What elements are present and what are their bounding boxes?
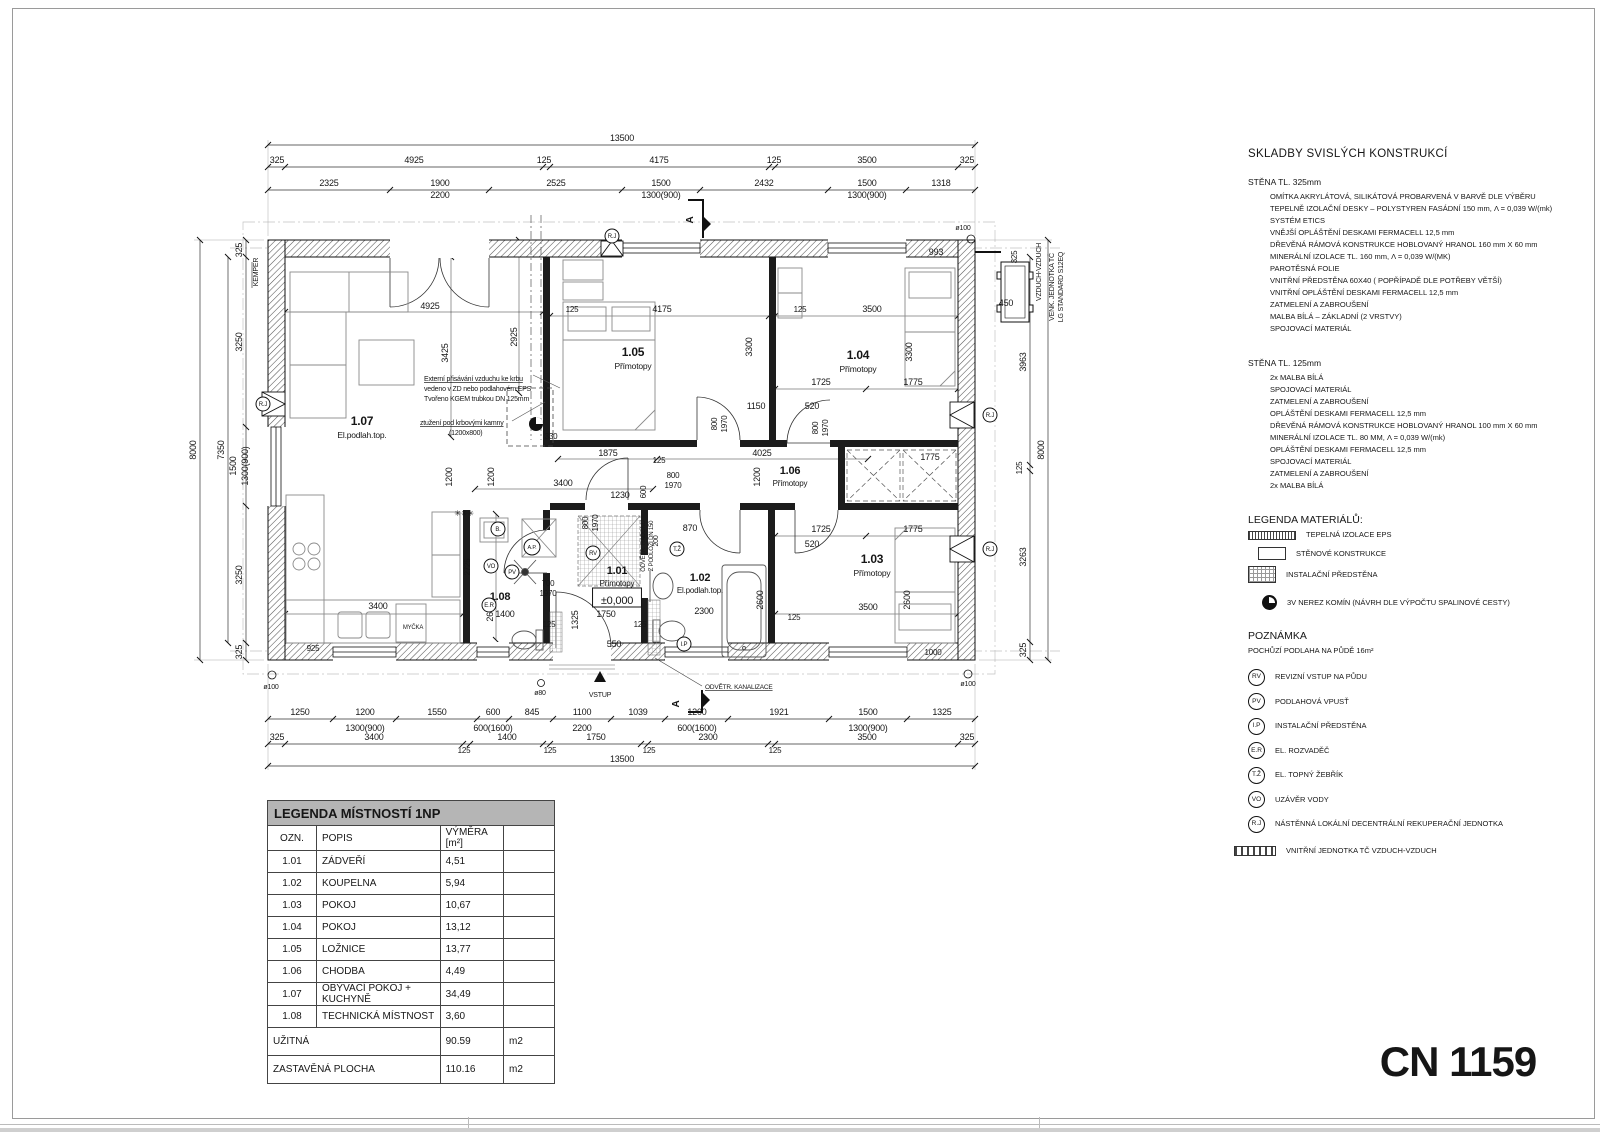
svg-text:330: 330	[545, 432, 558, 441]
next-sheet-band	[0, 1128, 1600, 1132]
svg-text:125: 125	[1015, 461, 1024, 474]
total-value: 110.16	[440, 1056, 503, 1084]
svg-text:ODVĚTR. RADONU: ODVĚTR. RADONU	[639, 520, 647, 572]
note-line: ZATMELENÍ A ZABROUŠENÍ	[1270, 299, 1578, 311]
svg-text:1300(900): 1300(900)	[641, 190, 680, 200]
svg-text:450: 450	[999, 298, 1014, 308]
cell-vymera: 13,77	[440, 939, 503, 961]
svg-text:4025: 4025	[752, 448, 771, 458]
cell-ozn: 1.06	[268, 961, 317, 983]
svg-text:1300(900): 1300(900)	[240, 446, 250, 485]
svg-text:125: 125	[794, 305, 807, 314]
svg-text:13500: 13500	[610, 133, 634, 143]
svg-text:3500: 3500	[858, 602, 877, 612]
symbol-label: UZÁVĚR VODY	[1275, 794, 1329, 806]
note-line: DŘEVĚNÁ RÁMOVÁ KONSTRUKCE HOBLOVANÝ HRAN…	[1270, 420, 1578, 432]
svg-text:1875: 1875	[598, 448, 617, 458]
svg-text:El.podlah.top.: El.podlah.top.	[337, 430, 386, 440]
svg-text:1.04: 1.04	[847, 348, 870, 362]
table-header-row: OZN. POPIS VÝMĚRA [m²]	[268, 826, 555, 851]
svg-text:R.J: R.J	[986, 547, 995, 553]
svg-text:3500: 3500	[857, 155, 876, 165]
outdoor-unit	[975, 252, 1033, 322]
svg-text:125: 125	[788, 613, 801, 622]
svg-text:1318: 1318	[931, 178, 950, 188]
wall-125-section: STĚNA TL. 125mm 2x MALBA BÍLÁSPOJOVACÍ M…	[1248, 357, 1578, 492]
note-line: SPOJOVACÍ MATERIÁL	[1270, 456, 1578, 468]
table-row: 1.07 OBÝVACÍ POKOJ + KUCHYNĚ 34,49	[268, 983, 555, 1006]
svg-text:3263: 3263	[1018, 547, 1028, 566]
room-legend-table: LEGENDA MÍSTNOSTÍ 1NP OZN. POPIS VÝMĚRA …	[267, 800, 555, 1084]
svg-text:125: 125	[653, 456, 666, 465]
svg-text:1039: 1039	[628, 707, 647, 717]
symbol-circle-icon: PV	[1248, 693, 1265, 710]
svg-text:3500: 3500	[862, 304, 881, 314]
svg-text:125: 125	[566, 305, 579, 314]
drawing-sheet: 1350032549251254175125350032523251900220…	[0, 0, 1600, 1132]
table-row: 1.02 KOUPELNA 5,94	[268, 873, 555, 895]
svg-text:1500: 1500	[228, 456, 238, 475]
total-unit: m2	[504, 1056, 555, 1084]
svg-text:I.P: I.P	[681, 642, 688, 648]
symbol-circle-icon: E.R	[1248, 742, 1265, 759]
svg-text:1200: 1200	[752, 467, 762, 486]
svg-text:845: 845	[525, 707, 540, 717]
cell-popis: ZÁDVEŘÍ	[316, 851, 440, 873]
svg-text:1900: 1900	[430, 178, 449, 188]
svg-text:325: 325	[270, 732, 285, 742]
svg-text:1200: 1200	[486, 467, 496, 486]
symbol-label: EL. TOPNÝ ŽEBŘÍK	[1275, 769, 1343, 781]
cell-ozn: 1.01	[268, 851, 317, 873]
cell-ozn: 1.07	[268, 983, 317, 1006]
svg-text:2600: 2600	[902, 590, 912, 609]
svg-text:vedeno v ZD nebo podlahovém EP: vedeno v ZD nebo podlahovém EPS	[424, 386, 532, 393]
svg-text:2432: 2432	[754, 178, 773, 188]
note-line: MALBA BÍLÁ – ZÁKLADNÍ (2 VRSTVY)	[1270, 311, 1578, 323]
svg-text:4175: 4175	[649, 155, 668, 165]
total-row: ZASTAVĚNÁ PLOCHA 110.16 m2	[268, 1056, 555, 1084]
svg-text:3400: 3400	[364, 732, 383, 742]
symbol-label: PODLAHOVÁ VPUSŤ	[1275, 696, 1349, 708]
svg-text:3963: 3963	[1018, 352, 1028, 371]
svg-text:2300: 2300	[694, 606, 713, 616]
svg-text:700: 700	[542, 579, 555, 588]
cell-popis: OBÝVACÍ POKOJ + KUCHYNĚ	[316, 983, 440, 1006]
svg-text:1200: 1200	[355, 707, 374, 717]
table-row: 1.05 LOŽNICE 13,77	[268, 939, 555, 961]
wall-125-heading: STĚNA TL. 125mm	[1248, 357, 1578, 369]
svg-text:3300: 3300	[744, 337, 754, 356]
note-heading: POZNÁMKA	[1248, 630, 1578, 642]
svg-text:1250: 1250	[290, 707, 309, 717]
svg-text:2725: 2725	[463, 558, 472, 576]
svg-text:✳✳✳: ✳✳✳	[454, 509, 474, 518]
svg-text:2600: 2600	[755, 590, 765, 609]
svg-text:1970: 1970	[720, 415, 729, 433]
wall-325-heading: STĚNA TL. 325mm	[1248, 176, 1578, 188]
svg-text:1230: 1230	[610, 490, 629, 500]
table-row: 1.01 ZÁDVEŘÍ 4,51	[268, 851, 555, 873]
cell-popis: POKOJ	[316, 895, 440, 917]
svg-text:1.05: 1.05	[622, 345, 645, 359]
col-popis: POPIS	[316, 826, 440, 851]
svg-text:1970: 1970	[540, 589, 558, 598]
svg-text:3500: 3500	[857, 732, 876, 742]
cell-ozn: 1.03	[268, 895, 317, 917]
cell-vymera: 4,49	[440, 961, 503, 983]
svg-text:325: 325	[1018, 643, 1028, 658]
note-line: MINERÁLNÍ IZOLACE TL. 80 MM, Λ = 0,039 W…	[1270, 432, 1578, 444]
svg-text:1550: 1550	[427, 707, 446, 717]
hp-unit-swatch-icon	[1234, 846, 1276, 856]
svg-text:LG STANDARD S12EQ: LG STANDARD S12EQ	[1058, 251, 1065, 322]
table-row: 1.08 TECHNICKÁ MÍSTNOST 3,60	[268, 1006, 555, 1028]
svg-text:1200: 1200	[687, 707, 706, 717]
symbol-row: R.J NÁSTĚNNÁ LOKÁLNÍ DECENTRÁLNÍ REKUPER…	[1248, 812, 1578, 837]
svg-text:1150: 1150	[747, 401, 766, 411]
svg-text:1.06: 1.06	[780, 465, 801, 477]
material-label: STĚNOVÉ KONSTRUKCE	[1296, 548, 1386, 560]
note-line: ZATMELENÍ A ZABROUŠENÍ	[1270, 468, 1578, 480]
cell-popis: TECHNICKÁ MÍSTNOST	[316, 1006, 440, 1028]
symbol-legend: RV REVIZNÍ VSTUP NA PŮDU PV PODLAHOVÁ VP…	[1248, 665, 1578, 837]
total-value: 90.59	[440, 1028, 503, 1056]
svg-text:325: 325	[960, 155, 975, 165]
table-totals: UŽITNÁ 90.59 m2 ZASTAVĚNÁ PLOCHA 110.16 …	[268, 1028, 555, 1084]
svg-text:1400: 1400	[495, 609, 514, 619]
cell-vymera: 3,60	[440, 1006, 503, 1028]
svg-text:KEMPER: KEMPER	[253, 258, 260, 287]
construction-notes-panel: SKLADBY SVISLÝCH KONSTRUKCÍ STĚNA TL. 32…	[1248, 148, 1578, 857]
materials-heading: LEGENDA MATERIÁLŮ:	[1248, 514, 1578, 526]
svg-text:E.R: E.R	[484, 603, 494, 609]
svg-text:ø100: ø100	[960, 681, 975, 688]
svg-text:3425: 3425	[440, 343, 450, 362]
svg-text:Přímotopy: Přímotopy	[854, 568, 892, 578]
svg-text:1.07: 1.07	[351, 414, 374, 428]
svg-text:3400: 3400	[368, 601, 387, 611]
svg-text:1970: 1970	[665, 481, 683, 490]
svg-text:ø100: ø100	[955, 225, 970, 232]
material-row: INSTALAČNÍ PŘEDSTĚNA	[1248, 566, 1578, 583]
svg-text:ztužení pod krbovými kamny: ztužení pod krbovými kamny	[420, 420, 504, 427]
note-line: OPLÁŠTĚNÍ DESKAMI FERMACELL 12,5 mm	[1270, 444, 1578, 456]
cell-vymera: 13,12	[440, 917, 503, 939]
svg-text:1.03: 1.03	[861, 552, 884, 566]
cell-ozn: 1.08	[268, 1006, 317, 1028]
wall-325-section: STĚNA TL. 325mm OMÍTKA AKRYLÁTOVÁ, SILIK…	[1248, 176, 1578, 335]
symbol-label: INSTALAČNÍ PŘEDSTĚNA	[1275, 720, 1367, 732]
svg-text:125: 125	[767, 155, 782, 165]
note-line: SPOJOVACÍ MATERIÁL	[1270, 323, 1578, 335]
cell-ozn: 1.02	[268, 873, 317, 895]
svg-text:800: 800	[667, 471, 680, 480]
recuperation-units	[262, 241, 974, 562]
symbol-circle-icon: R.J	[1248, 816, 1265, 833]
note-line: 2x MALBA BÍLÁ	[1270, 372, 1578, 384]
col-vymera: VÝMĚRA [m²]	[440, 826, 503, 851]
total-unit: m2	[504, 1028, 555, 1056]
svg-text:1325: 1325	[570, 610, 580, 629]
svg-text:ø80: ø80	[534, 690, 546, 697]
note-line: DŘEVĚNÁ RÁMOVÁ KONSTRUKCE HOBLOVANÝ HRAN…	[1270, 239, 1578, 251]
materials-legend: LEGENDA MATERIÁLŮ: TEPELNÁ IZOLACE EPS S…	[1248, 514, 1578, 616]
svg-text:1970: 1970	[821, 419, 830, 437]
svg-text:125: 125	[543, 620, 556, 629]
cell-vymera: 5,94	[440, 873, 503, 895]
svg-text:1775: 1775	[920, 452, 939, 462]
svg-text:8000: 8000	[1036, 440, 1046, 459]
svg-text:R.J: R.J	[259, 402, 268, 408]
svg-text:(1200x800): (1200x800)	[449, 430, 482, 437]
svg-text:800: 800	[581, 516, 590, 529]
note-line: VNITŘNÍ OPLÁŠTĚNÍ DESKAMI FERMACELL 12,5…	[1270, 287, 1578, 299]
svg-text:1.01: 1.01	[607, 565, 628, 577]
svg-text:1775: 1775	[903, 524, 922, 534]
note-line: ZATMELENÍ A ZABROUŠENÍ	[1270, 396, 1578, 408]
svg-text:PV: PV	[508, 570, 516, 576]
material-label: INSTALAČNÍ PŘEDSTĚNA	[1286, 569, 1378, 581]
svg-text:520: 520	[805, 401, 820, 411]
svg-text:550: 550	[607, 639, 622, 649]
note-line: OPLÁŠTĚNÍ DESKAMI FERMACELL 12,5 mm	[1270, 408, 1578, 420]
svg-text:1300(900): 1300(900)	[847, 190, 886, 200]
svg-text:3400: 3400	[553, 478, 572, 488]
svg-text:4925: 4925	[404, 155, 423, 165]
note-line: 2x MALBA BÍLÁ	[1270, 480, 1578, 492]
symbol-row: VO UZÁVĚR VODY	[1248, 788, 1578, 813]
svg-text:4925: 4925	[420, 301, 439, 311]
plan-labels: 1350032549251254175125350032523251900220…	[188, 133, 1065, 764]
hp-unit-label: VNITŘNÍ JEDNOTKA TČ VZDUCH-VZDUCH	[1286, 845, 1437, 857]
svg-text:993: 993	[929, 247, 944, 257]
svg-text:A.P.: A.P.	[528, 545, 538, 551]
svg-text:125: 125	[634, 620, 647, 629]
svg-text:1750: 1750	[586, 732, 605, 742]
material-label: 3V NEREZ KOMÍN (NÁVRH DLE VÝPOČTU SPALIN…	[1287, 597, 1510, 609]
svg-text:600: 600	[486, 707, 501, 717]
svg-text:325: 325	[1010, 250, 1019, 263]
symbol-label: NÁSTĚNNÁ LOKÁLNÍ DECENTRÁLNÍ REKUPERAČNÍ…	[1275, 818, 1503, 830]
svg-text:325: 325	[270, 155, 285, 165]
svg-text:125: 125	[458, 746, 471, 755]
svg-text:325: 325	[960, 732, 975, 742]
svg-text:4175: 4175	[652, 304, 671, 314]
svg-text:2300: 2300	[698, 732, 717, 742]
wall-125-lines: 2x MALBA BÍLÁSPOJOVACÍ MATERIÁLZATMELENÍ…	[1270, 372, 1578, 492]
symbol-circle-icon: VO	[1248, 791, 1265, 808]
svg-text:Přímotopy: Přímotopy	[600, 579, 635, 588]
material-label: TEPELNÁ IZOLACE EPS	[1306, 529, 1391, 541]
svg-text:925: 925	[307, 644, 320, 653]
sheet-code: CN 1159	[1348, 1038, 1568, 1086]
svg-text:325: 325	[234, 243, 244, 258]
material-swatch-icon	[1258, 547, 1286, 560]
note-line: VNĚJŠÍ OPLÁŠTĚNÍ DESKAMI FERMACELL 12,5 …	[1270, 227, 1578, 239]
svg-text:Přímotopy: Přímotopy	[615, 361, 653, 371]
note-line: TEPELNĚ IZOLAČNÍ DESKY – POLYSTYREN FASÁ…	[1270, 203, 1578, 227]
svg-text:A: A	[671, 700, 682, 707]
svg-text:Přímotopy: Přímotopy	[840, 364, 878, 374]
material-row: 3V NEREZ KOMÍN (NÁVRH DLE VÝPOČTU SPALIN…	[1248, 589, 1578, 616]
symbol-row: T.Ž EL. TOPNÝ ŽEBŘÍK	[1248, 763, 1578, 788]
windows	[271, 243, 907, 657]
svg-text:R.J: R.J	[608, 234, 617, 240]
svg-text:1500: 1500	[651, 178, 670, 188]
svg-text:Externí přisávání vzduchu ke k: Externí přisávání vzduchu ke krbu	[424, 376, 523, 383]
svg-text:T.Ž: T.Ž	[673, 545, 681, 553]
svg-text:MYČKA: MYČKA	[403, 624, 424, 631]
note-line: MINERÁLNÍ IZOLACE TL. 160 mm, Λ = 0,039 …	[1270, 251, 1578, 263]
material-swatch-icon	[1262, 595, 1277, 610]
symbol-label: REVIZNÍ VSTUP NA PŮDU	[1275, 671, 1367, 683]
material-swatch-icon	[1248, 531, 1296, 540]
symbol-row: I.P INSTALAČNÍ PŘEDSTĚNA	[1248, 714, 1578, 739]
note-line: OMÍTKA AKRYLÁTOVÁ, SILIKÁTOVÁ PROBARVENÁ…	[1270, 191, 1578, 203]
table-row: 1.03 POKOJ 10,67	[268, 895, 555, 917]
cell-vymera: 34,49	[440, 983, 503, 1006]
svg-text:2525: 2525	[546, 178, 565, 188]
svg-text:Přímotopy: Přímotopy	[773, 479, 808, 488]
total-label: ZASTAVĚNÁ PLOCHA	[268, 1056, 441, 1084]
svg-text:1400: 1400	[497, 732, 516, 742]
svg-text:125: 125	[769, 746, 782, 755]
svg-text:125: 125	[544, 746, 557, 755]
svg-text:325: 325	[234, 645, 244, 660]
svg-text:ø100: ø100	[263, 684, 278, 691]
material-row: STĚNOVÉ KONSTRUKCE	[1248, 547, 1578, 560]
cell-vymera: 4,51	[440, 851, 503, 873]
svg-text:870: 870	[683, 523, 698, 533]
cell-ozn: 1.05	[268, 939, 317, 961]
symbol-circle-icon: T.Ž	[1248, 767, 1265, 784]
cell-popis: CHODBA	[316, 961, 440, 983]
svg-text:1500: 1500	[857, 178, 876, 188]
svg-text:2925: 2925	[509, 327, 519, 346]
cell-ozn: 1.04	[268, 917, 317, 939]
symbol-circle-icon: I.P	[1248, 718, 1265, 735]
note-line: VNITŘNÍ PŘEDSTĚNA 60X40 ( POPŘÍPADĚ DLE …	[1270, 275, 1578, 287]
svg-text:3250: 3250	[234, 332, 244, 351]
svg-text:VZDUCH-VZDUCH: VZDUCH-VZDUCH	[1036, 243, 1043, 301]
svg-text:800: 800	[710, 417, 719, 430]
symbol-row: PV PODLAHOVÁ VPUSŤ	[1248, 690, 1578, 715]
svg-text:1750: 1750	[596, 609, 615, 619]
total-label: UŽITNÁ	[268, 1028, 441, 1056]
svg-text:3300: 3300	[904, 342, 914, 361]
svg-text:7350: 7350	[216, 440, 226, 459]
table-title: LEGENDA MÍSTNOSTÍ 1NP	[268, 801, 555, 826]
svg-text:RV: RV	[589, 551, 597, 557]
svg-text:1500: 1500	[858, 707, 877, 717]
note-line: PAROTĚSNÁ FOLIE	[1270, 263, 1578, 275]
cell-popis: LOŽNICE	[316, 939, 440, 961]
svg-text:1325: 1325	[932, 707, 951, 717]
panel-title: SKLADBY SVISLÝCH KONSTRUKCÍ	[1248, 148, 1578, 160]
symbol-label: EL. ROZVADĚČ	[1275, 745, 1329, 757]
total-row: UŽITNÁ 90.59 m2	[268, 1028, 555, 1056]
svg-text:1100: 1100	[573, 707, 592, 717]
symbol-row: E.R EL. ROZVADĚČ	[1248, 739, 1578, 764]
table-row: 1.04 POKOJ 13,12	[268, 917, 555, 939]
svg-text:125: 125	[643, 746, 656, 755]
material-row: TEPELNÁ IZOLACE EPS	[1248, 529, 1578, 541]
svg-text:13500: 13500	[610, 754, 634, 764]
svg-text:VSTUP: VSTUP	[589, 692, 612, 699]
materials-items: TEPELNÁ IZOLACE EPS STĚNOVÉ KONSTRUKCE I…	[1248, 529, 1578, 616]
col-extra	[504, 826, 555, 851]
svg-text:1970: 1970	[591, 514, 600, 532]
entrance-arrow-icon	[594, 671, 606, 682]
svg-text:1725: 1725	[811, 524, 830, 534]
svg-text:B.: B.	[495, 527, 501, 533]
svg-text:1725: 1725	[811, 377, 830, 387]
next-sheet-edge	[0, 1124, 1600, 1125]
svg-text:ODVĚTR. KANALIZACE: ODVĚTR. KANALIZACE	[705, 682, 773, 691]
svg-text:125: 125	[537, 155, 552, 165]
hp-unit-row: VNITŘNÍ JEDNOTKA TČ VZDUCH-VZDUCH	[1234, 845, 1578, 857]
svg-text:1000: 1000	[925, 648, 943, 657]
svg-text:800: 800	[811, 421, 820, 434]
svg-text:Z PODLOŽÍ DN 150: Z PODLOŽÍ DN 150	[647, 520, 655, 571]
svg-text:8000: 8000	[188, 440, 198, 459]
cell-popis: POKOJ	[316, 917, 440, 939]
col-ozn: OZN.	[268, 826, 317, 851]
svg-text:1921: 1921	[769, 707, 788, 717]
svg-text:2200: 2200	[430, 190, 449, 200]
svg-text:A: A	[685, 216, 696, 223]
svg-text:El.podlah.top.: El.podlah.top.	[677, 586, 723, 595]
svg-text:Tvořeno KGEM trubkou DN 125mm: Tvořeno KGEM trubkou DN 125mm	[424, 396, 529, 403]
svg-text:2325: 2325	[319, 178, 338, 188]
wall-325-lines: OMÍTKA AKRYLÁTOVÁ, SILIKÁTOVÁ PROBARVENÁ…	[1270, 191, 1578, 335]
cell-popis: KOUPELNA	[316, 873, 440, 895]
svg-text:3250: 3250	[234, 565, 244, 584]
symbol-circle-icon: RV	[1248, 669, 1265, 686]
svg-text:±0,000: ±0,000	[601, 595, 633, 607]
svg-text:600: 600	[639, 485, 648, 498]
svg-text:1.02: 1.02	[690, 572, 711, 584]
svg-text:1775: 1775	[903, 377, 922, 387]
note-line: SPOJOVACÍ MATERIÁL	[1270, 384, 1578, 396]
table-row: 1.06 CHODBA 4,49	[268, 961, 555, 983]
note-section: POZNÁMKA POCHŮZÍ PODLAHA NA PŮDĚ 16m²	[1248, 630, 1578, 657]
svg-text:VO: VO	[487, 564, 496, 570]
svg-text:VENK. JEDNOTKA TČ: VENK. JEDNOTKA TČ	[1047, 253, 1056, 321]
note-text: POCHŮZÍ PODLAHA NA PŮDĚ 16m²	[1248, 645, 1578, 657]
svg-text:R.J: R.J	[986, 413, 995, 419]
material-swatch-icon	[1248, 566, 1276, 583]
symbol-row: RV REVIZNÍ VSTUP NA PŮDU	[1248, 665, 1578, 690]
svg-text:520: 520	[805, 539, 820, 549]
svg-text:1200: 1200	[444, 467, 454, 486]
table-body: 1.01 ZÁDVEŘÍ 4,51 1.02 KOUPELNA 5,94 1.0…	[268, 851, 555, 1028]
cell-vymera: 10,67	[440, 895, 503, 917]
